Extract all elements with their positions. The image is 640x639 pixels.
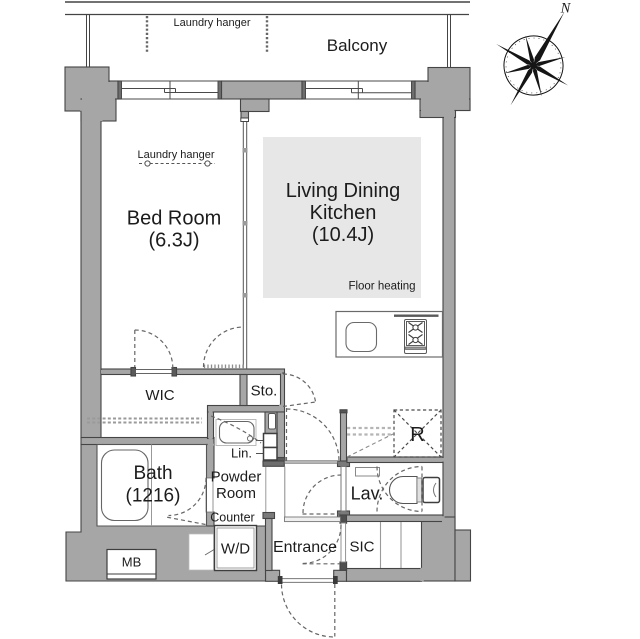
svg-text:Sto.: Sto.: [251, 383, 278, 400]
svg-text:Laundry hanger: Laundry hanger: [137, 149, 214, 161]
svg-text:Floor heating: Floor heating: [348, 281, 415, 293]
svg-text:W/D: W/D: [221, 541, 250, 558]
svg-text:(1216): (1216): [126, 486, 181, 507]
svg-text:Lin.: Lin.: [231, 446, 252, 461]
svg-text:Room: Room: [216, 485, 256, 502]
svg-text:MB: MB: [122, 555, 142, 570]
svg-text:N: N: [560, 1, 572, 17]
svg-text:R: R: [410, 424, 424, 446]
svg-text:Laundry hanger: Laundry hanger: [173, 17, 250, 29]
svg-text:Powder: Powder: [211, 469, 262, 486]
svg-text:Bed Room: Bed Room: [127, 208, 222, 230]
svg-text:SIC: SIC: [349, 539, 374, 556]
svg-text:Balcony: Balcony: [327, 36, 388, 55]
svg-text:Bath: Bath: [133, 463, 172, 484]
svg-text:Lav.: Lav.: [351, 484, 384, 504]
svg-text:Living Dining: Living Dining: [286, 180, 401, 202]
svg-text:Kitchen: Kitchen: [310, 202, 377, 224]
svg-text:WIC: WIC: [145, 387, 174, 404]
svg-text:Counter: Counter: [210, 511, 254, 525]
svg-text:(6.3J): (6.3J): [148, 230, 199, 252]
svg-text:(10.4J): (10.4J): [312, 224, 374, 246]
svg-text:Entrance: Entrance: [273, 539, 337, 556]
